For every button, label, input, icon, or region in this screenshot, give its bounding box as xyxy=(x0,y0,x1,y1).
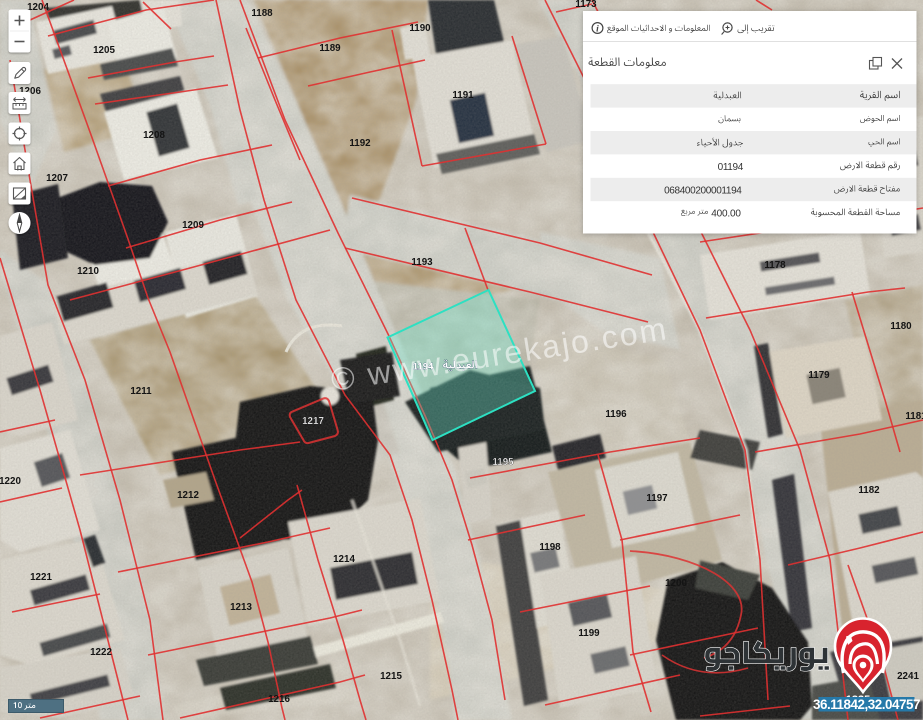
svg-text:1192: 1192 xyxy=(349,138,371,149)
svg-text:1207: 1207 xyxy=(46,173,68,184)
svg-text:1199: 1199 xyxy=(578,628,600,639)
svg-text:1217: 1217 xyxy=(302,416,324,427)
svg-text:1180: 1180 xyxy=(890,321,912,332)
svg-text:1200: 1200 xyxy=(665,578,687,589)
svg-text:i: i xyxy=(596,25,599,35)
svg-text:1179: 1179 xyxy=(808,370,830,381)
svg-text:1208: 1208 xyxy=(143,130,165,141)
svg-text:1173: 1173 xyxy=(575,0,597,10)
svg-text:1189: 1189 xyxy=(319,43,341,54)
svg-text:1191: 1191 xyxy=(452,90,474,101)
svg-text:1211: 1211 xyxy=(130,386,152,397)
svg-text:1213: 1213 xyxy=(230,602,252,613)
svg-text:1198: 1198 xyxy=(539,542,561,553)
svg-text:1193: 1193 xyxy=(411,257,433,268)
svg-text:01194: 01194 xyxy=(718,162,744,173)
svg-text:1205: 1205 xyxy=(93,45,115,56)
svg-text:1221: 1221 xyxy=(30,572,52,583)
svg-text:2241: 2241 xyxy=(897,671,919,682)
svg-text:1215: 1215 xyxy=(380,671,402,682)
svg-text:1214: 1214 xyxy=(333,554,355,565)
svg-text:068400200001194: 068400200001194 xyxy=(664,185,742,196)
svg-text:1212: 1212 xyxy=(177,490,199,501)
svg-text:1216: 1216 xyxy=(268,694,290,705)
svg-text:1197: 1197 xyxy=(646,493,668,504)
svg-text:1204: 1204 xyxy=(27,2,49,13)
svg-text:36.11842,32.04757: 36.11842,32.04757 xyxy=(813,697,920,712)
svg-text:1196: 1196 xyxy=(605,409,627,420)
svg-text:1190: 1190 xyxy=(409,23,431,34)
svg-text:1195: 1195 xyxy=(492,457,514,468)
svg-text:1181: 1181 xyxy=(905,411,923,422)
svg-text:1188: 1188 xyxy=(251,8,273,19)
svg-text:1222: 1222 xyxy=(90,647,112,658)
svg-text:1178: 1178 xyxy=(764,260,786,271)
svg-text:400.00: 400.00 xyxy=(711,208,741,219)
svg-text:1220: 1220 xyxy=(0,476,21,487)
svg-text:1182: 1182 xyxy=(858,485,880,496)
svg-text:1210: 1210 xyxy=(77,266,99,277)
svg-text:1209: 1209 xyxy=(182,220,204,231)
